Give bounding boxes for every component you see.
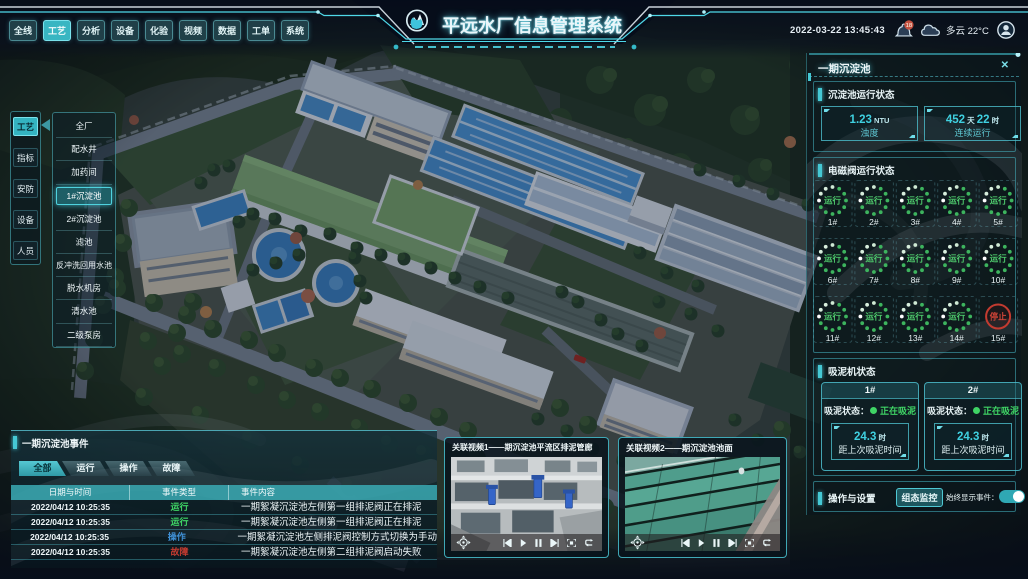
svg-text:11#: 11#	[826, 333, 840, 343]
svg-text:运行: 运行	[865, 312, 883, 322]
svg-text:9#: 9#	[952, 275, 962, 285]
svg-text:13#: 13#	[908, 333, 922, 343]
svg-text:运行: 运行	[990, 196, 1008, 206]
svg-text:运行: 运行	[865, 254, 883, 264]
svg-text:运行: 运行	[824, 196, 842, 206]
svg-text:18: 18	[906, 23, 913, 29]
svg-text:15#: 15#	[991, 333, 1005, 343]
svg-text:运行: 运行	[948, 254, 966, 264]
svg-text:运行: 运行	[907, 312, 925, 322]
svg-text:运行: 运行	[948, 196, 966, 206]
svg-text:运行: 运行	[824, 254, 842, 264]
svg-text:停止: 停止	[990, 312, 1008, 322]
svg-text:运行: 运行	[907, 196, 925, 206]
svg-text:1#: 1#	[828, 217, 838, 227]
svg-text:5#: 5#	[993, 217, 1003, 227]
svg-text:8#: 8#	[911, 275, 921, 285]
svg-text:2#: 2#	[869, 217, 879, 227]
svg-text:12#: 12#	[867, 333, 881, 343]
svg-text:运行: 运行	[865, 196, 883, 206]
svg-text:运行: 运行	[907, 254, 925, 264]
svg-text:运行: 运行	[990, 254, 1008, 264]
svg-text:3#: 3#	[911, 217, 921, 227]
svg-text:运行: 运行	[824, 312, 842, 322]
svg-text:6#: 6#	[828, 275, 838, 285]
svg-text:运行: 运行	[948, 312, 966, 322]
svg-text:7#: 7#	[869, 275, 879, 285]
svg-text:14#: 14#	[950, 333, 964, 343]
svg-text:10#: 10#	[991, 275, 1005, 285]
svg-text:4#: 4#	[952, 217, 962, 227]
